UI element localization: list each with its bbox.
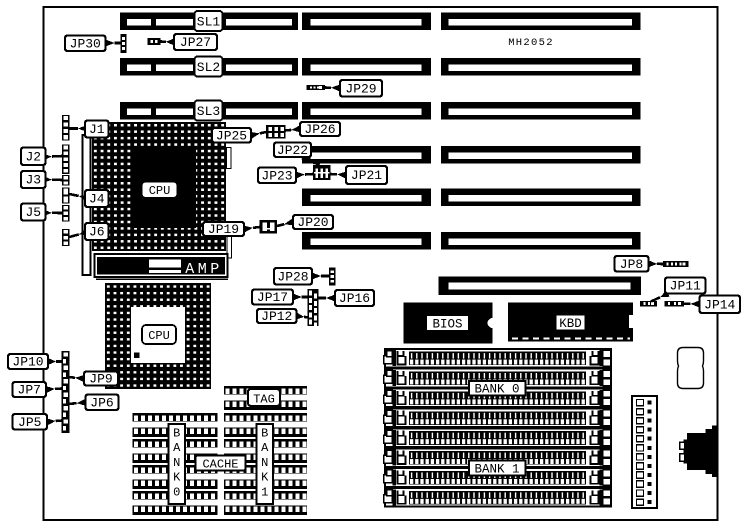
svg-text:JP11: JP11 xyxy=(670,279,701,294)
svg-text:JP12: JP12 xyxy=(261,309,292,324)
svg-text:CACHE: CACHE xyxy=(202,458,238,472)
svg-text:J1: J1 xyxy=(89,122,105,137)
svg-text:JP26: JP26 xyxy=(304,122,335,137)
svg-text:SL3: SL3 xyxy=(197,104,220,119)
svg-text:JP16: JP16 xyxy=(339,291,370,306)
svg-text:K: K xyxy=(173,471,181,485)
svg-text:K: K xyxy=(261,471,269,485)
svg-text:JP27: JP27 xyxy=(180,35,211,50)
svg-text:BANK 0: BANK 0 xyxy=(474,383,519,397)
svg-text:JP20: JP20 xyxy=(297,215,328,230)
svg-text:AMP: AMP xyxy=(185,261,223,278)
svg-text:JP7: JP7 xyxy=(18,383,41,398)
svg-text:JP17: JP17 xyxy=(257,290,288,305)
svg-text:JP8: JP8 xyxy=(620,257,643,272)
svg-text:JP5: JP5 xyxy=(18,415,41,430)
svg-text:JP25: JP25 xyxy=(216,128,247,143)
svg-text:BANK 1: BANK 1 xyxy=(474,463,519,477)
svg-text:JP28: JP28 xyxy=(277,269,308,284)
svg-text:A: A xyxy=(261,441,269,455)
svg-text:MH2052: MH2052 xyxy=(508,37,554,49)
svg-text:J2: J2 xyxy=(25,149,41,164)
svg-text:JP30: JP30 xyxy=(70,36,101,51)
svg-text:A: A xyxy=(173,441,181,455)
svg-text:SL1: SL1 xyxy=(197,15,221,30)
svg-text:J3: J3 xyxy=(25,173,41,188)
svg-text:B: B xyxy=(261,427,268,441)
svg-text:J5: J5 xyxy=(25,205,41,220)
svg-text:JP21: JP21 xyxy=(351,168,382,183)
svg-text:CPU: CPU xyxy=(148,329,170,343)
svg-text:SL2: SL2 xyxy=(197,60,220,75)
svg-text:N: N xyxy=(173,456,180,470)
svg-text:J4: J4 xyxy=(89,192,105,207)
svg-text:CPU: CPU xyxy=(149,184,171,198)
svg-text:JP22: JP22 xyxy=(277,143,308,158)
svg-text:J6: J6 xyxy=(89,225,105,240)
svg-text:BIOS: BIOS xyxy=(432,318,462,332)
svg-text:TAG: TAG xyxy=(253,393,275,407)
svg-text:B: B xyxy=(173,427,180,441)
svg-text:1: 1 xyxy=(261,485,268,499)
svg-text:JP19: JP19 xyxy=(208,222,239,237)
svg-text:0: 0 xyxy=(173,485,180,499)
svg-text:JP29: JP29 xyxy=(345,81,376,96)
svg-text:JP14: JP14 xyxy=(704,297,735,312)
svg-text:JP6: JP6 xyxy=(90,395,113,410)
svg-text:JP10: JP10 xyxy=(12,355,43,370)
svg-text:JP23: JP23 xyxy=(261,168,292,183)
svg-text:JP9: JP9 xyxy=(89,372,112,387)
svg-text:KBD: KBD xyxy=(559,317,582,331)
svg-text:N: N xyxy=(261,456,268,470)
